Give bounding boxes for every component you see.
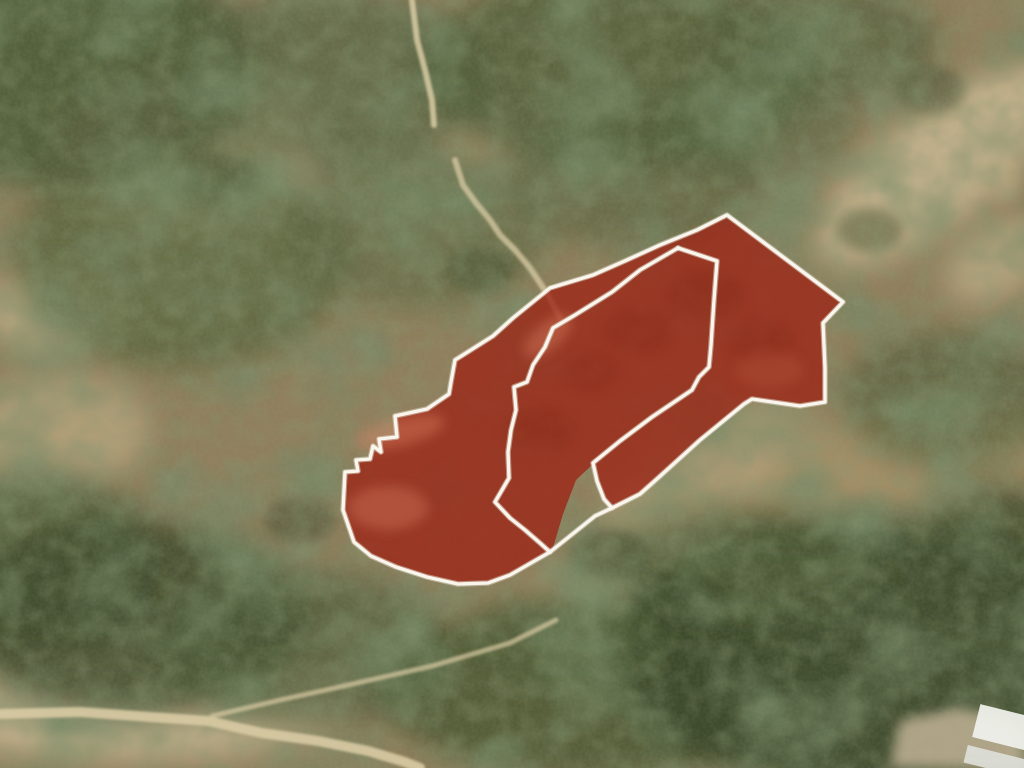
map-canvas	[0, 0, 1024, 768]
satellite-map-view[interactable]	[0, 0, 1024, 768]
